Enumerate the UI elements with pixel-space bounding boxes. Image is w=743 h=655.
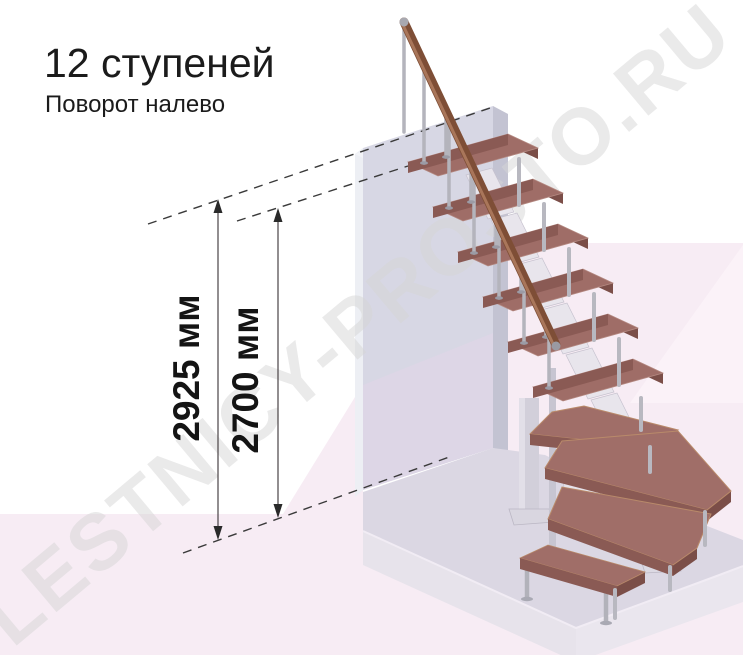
staircase-diagram-svg: LESTNICY-PROSTO.RU — [0, 0, 743, 655]
dimension-label-overall: 2925 мм — [166, 294, 207, 441]
handrail-top-cap — [400, 18, 409, 27]
page-title: 12 ступеней — [44, 40, 275, 86]
bottom-step-foot-left — [521, 597, 533, 601]
dimension-label-top-step: 2700 мм — [225, 306, 266, 453]
page-subtitle: Поворот налево — [45, 91, 225, 118]
bottom-step-foot-right — [600, 621, 612, 625]
support-column-left-base — [509, 509, 554, 525]
handrail-end-cap — [552, 342, 561, 351]
support-column-left-highlight — [519, 398, 525, 515]
staircase-diagram: LESTNICY-PROSTO.RU — [0, 0, 743, 655]
